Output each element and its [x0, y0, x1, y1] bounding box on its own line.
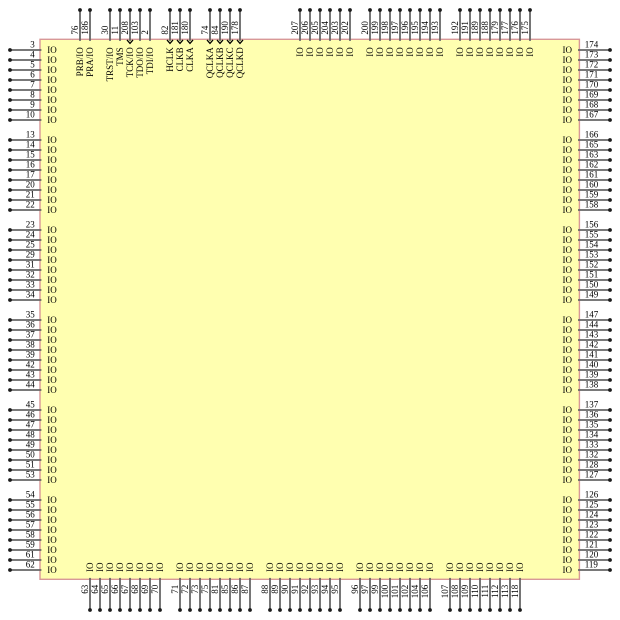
svg-text:128: 128: [585, 460, 599, 470]
svg-text:IO: IO: [47, 135, 57, 145]
svg-text:144: 144: [585, 320, 599, 330]
svg-text:IO: IO: [155, 562, 165, 572]
svg-text:IO: IO: [563, 135, 573, 145]
svg-text:IO: IO: [415, 562, 425, 572]
svg-text:IO: IO: [47, 495, 57, 505]
svg-text:IO: IO: [47, 155, 57, 165]
svg-text:IO: IO: [47, 475, 57, 485]
svg-text:IO: IO: [495, 562, 505, 572]
svg-text:161: 161: [585, 170, 599, 180]
svg-text:48: 48: [26, 430, 36, 440]
svg-text:IO: IO: [47, 255, 57, 265]
svg-text:112: 112: [490, 585, 500, 598]
svg-text:195: 195: [410, 21, 420, 35]
svg-text:55: 55: [26, 500, 36, 510]
svg-text:IO: IO: [505, 47, 515, 57]
svg-text:141: 141: [585, 350, 599, 360]
svg-text:159: 159: [585, 190, 599, 200]
svg-text:IO: IO: [47, 385, 57, 395]
svg-text:QCLKB: QCLKB: [215, 47, 225, 78]
svg-text:IO: IO: [47, 525, 57, 535]
svg-text:IO: IO: [385, 562, 395, 572]
svg-text:IO: IO: [47, 535, 57, 545]
svg-text:119: 119: [585, 560, 599, 570]
svg-text:IO: IO: [47, 225, 57, 235]
svg-text:126: 126: [585, 490, 599, 500]
svg-text:IO: IO: [375, 562, 385, 572]
svg-text:10: 10: [26, 110, 36, 120]
svg-text:166: 166: [585, 130, 599, 140]
svg-text:IO: IO: [563, 495, 573, 505]
svg-text:IO: IO: [563, 405, 573, 415]
svg-text:56: 56: [26, 510, 36, 520]
svg-text:147: 147: [585, 310, 599, 320]
svg-text:42: 42: [26, 360, 35, 370]
svg-text:32: 32: [26, 270, 35, 280]
svg-text:11: 11: [110, 26, 120, 35]
svg-text:104: 104: [410, 584, 420, 598]
svg-text:IO: IO: [375, 47, 385, 57]
svg-text:IO: IO: [325, 47, 335, 57]
svg-text:IO: IO: [563, 185, 573, 195]
svg-text:IO: IO: [563, 275, 573, 285]
svg-text:IO: IO: [47, 315, 57, 325]
svg-text:173: 173: [585, 50, 599, 60]
svg-text:IO: IO: [563, 235, 573, 245]
svg-text:152: 152: [585, 260, 599, 270]
svg-text:IO: IO: [47, 115, 57, 125]
svg-text:109: 109: [460, 584, 470, 598]
svg-text:16: 16: [26, 160, 36, 170]
svg-text:202: 202: [340, 21, 350, 35]
svg-text:203: 203: [330, 21, 340, 35]
svg-text:IO: IO: [325, 562, 335, 572]
svg-text:133: 133: [585, 440, 599, 450]
svg-text:158: 158: [585, 200, 599, 210]
svg-text:IO: IO: [563, 155, 573, 165]
svg-text:IO: IO: [225, 562, 235, 572]
svg-text:3: 3: [30, 40, 35, 50]
svg-text:IO: IO: [47, 515, 57, 525]
svg-text:74: 74: [200, 25, 210, 35]
svg-text:134: 134: [585, 430, 599, 440]
svg-text:205: 205: [310, 21, 320, 35]
svg-text:135: 135: [585, 420, 599, 430]
svg-text:IO: IO: [315, 47, 325, 57]
svg-text:162: 162: [585, 160, 599, 170]
svg-text:94: 94: [320, 584, 330, 594]
svg-text:IO: IO: [563, 255, 573, 265]
svg-text:IO: IO: [47, 335, 57, 345]
svg-text:IO: IO: [563, 75, 573, 85]
svg-text:38: 38: [26, 340, 36, 350]
svg-text:180: 180: [180, 21, 190, 35]
svg-text:34: 34: [26, 290, 36, 300]
svg-text:69: 69: [140, 584, 150, 594]
svg-text:IO: IO: [425, 47, 435, 57]
svg-text:IO: IO: [563, 55, 573, 65]
svg-text:TMS: TMS: [115, 47, 125, 66]
svg-text:39: 39: [26, 350, 36, 360]
svg-text:IO: IO: [47, 415, 57, 425]
svg-text:IO: IO: [563, 115, 573, 125]
svg-text:4: 4: [30, 50, 35, 60]
svg-text:IO: IO: [563, 95, 573, 105]
svg-text:37: 37: [26, 330, 36, 340]
svg-text:IO: IO: [105, 562, 115, 572]
svg-text:142: 142: [585, 340, 599, 350]
svg-text:54: 54: [26, 490, 36, 500]
svg-text:IO: IO: [145, 562, 155, 572]
svg-text:72: 72: [180, 585, 190, 594]
svg-text:IO: IO: [47, 555, 57, 565]
svg-text:194: 194: [420, 21, 430, 35]
svg-text:IO: IO: [563, 145, 573, 155]
svg-text:64: 64: [90, 584, 100, 594]
svg-text:200: 200: [360, 21, 370, 35]
svg-text:IO: IO: [563, 365, 573, 375]
svg-text:50: 50: [26, 450, 36, 460]
svg-text:156: 156: [585, 220, 599, 230]
svg-text:IO: IO: [275, 562, 285, 572]
svg-text:IO: IO: [47, 345, 57, 355]
svg-text:167: 167: [585, 110, 599, 120]
svg-text:15: 15: [26, 150, 36, 160]
svg-text:IO: IO: [563, 455, 573, 465]
svg-text:IO: IO: [365, 562, 375, 572]
svg-text:99: 99: [370, 584, 380, 594]
svg-text:22: 22: [26, 200, 35, 210]
svg-text:86: 86: [230, 584, 240, 594]
svg-text:IO: IO: [47, 405, 57, 415]
svg-text:IO: IO: [485, 562, 495, 572]
svg-text:IO: IO: [395, 562, 405, 572]
svg-text:IO: IO: [47, 285, 57, 295]
svg-text:70: 70: [150, 584, 160, 594]
svg-text:5: 5: [30, 60, 35, 70]
svg-text:122: 122: [585, 530, 599, 540]
svg-text:96: 96: [350, 584, 360, 594]
svg-text:176: 176: [510, 21, 520, 35]
svg-text:149: 149: [585, 290, 599, 300]
svg-text:196: 196: [400, 21, 410, 35]
svg-text:63: 63: [80, 584, 90, 594]
svg-text:168: 168: [585, 100, 599, 110]
svg-text:172: 172: [585, 60, 599, 70]
svg-text:107: 107: [440, 584, 450, 598]
svg-text:IO: IO: [563, 505, 573, 515]
svg-text:IO: IO: [47, 45, 57, 55]
svg-text:IO: IO: [47, 375, 57, 385]
svg-text:IO: IO: [563, 435, 573, 445]
svg-text:90: 90: [280, 584, 290, 594]
svg-text:IO: IO: [475, 47, 485, 57]
svg-text:45: 45: [26, 400, 36, 410]
svg-text:97: 97: [360, 584, 370, 594]
svg-text:IO: IO: [345, 47, 355, 57]
svg-text:93: 93: [310, 584, 320, 594]
svg-text:189: 189: [470, 21, 480, 35]
svg-text:IO: IO: [47, 435, 57, 445]
svg-text:IO: IO: [485, 47, 495, 57]
svg-text:153: 153: [585, 250, 599, 260]
svg-text:IO: IO: [563, 335, 573, 345]
svg-text:IO: IO: [135, 562, 145, 572]
svg-text:192: 192: [450, 21, 460, 35]
svg-text:TCK/IO: TCK/IO: [125, 47, 135, 77]
svg-text:59: 59: [26, 540, 36, 550]
svg-text:IO: IO: [305, 47, 315, 57]
svg-text:PRA/IO: PRA/IO: [85, 47, 95, 77]
svg-text:140: 140: [585, 360, 599, 370]
svg-text:IO: IO: [563, 375, 573, 385]
svg-text:21: 21: [26, 190, 35, 200]
svg-text:118: 118: [510, 584, 520, 598]
svg-text:17: 17: [26, 170, 36, 180]
svg-text:IO: IO: [47, 465, 57, 475]
svg-text:44: 44: [26, 380, 36, 390]
svg-text:IO: IO: [335, 47, 345, 57]
svg-text:IO: IO: [47, 85, 57, 95]
svg-text:IO: IO: [563, 465, 573, 475]
svg-text:IO: IO: [525, 47, 535, 57]
svg-text:31: 31: [26, 260, 35, 270]
svg-text:53: 53: [26, 470, 36, 480]
svg-text:IO: IO: [47, 545, 57, 555]
svg-text:24: 24: [26, 230, 36, 240]
svg-text:IO: IO: [125, 562, 135, 572]
svg-text:125: 125: [585, 500, 599, 510]
svg-text:207: 207: [290, 21, 300, 35]
svg-text:121: 121: [585, 540, 599, 550]
svg-text:81: 81: [210, 585, 220, 594]
svg-text:163: 163: [585, 150, 599, 160]
svg-text:IO: IO: [415, 47, 425, 57]
svg-text:QCLKC: QCLKC: [225, 47, 235, 78]
svg-text:IO: IO: [563, 415, 573, 425]
svg-text:110: 110: [470, 584, 480, 598]
svg-text:IO: IO: [355, 562, 365, 572]
svg-text:IO: IO: [95, 562, 105, 572]
svg-text:73: 73: [190, 584, 200, 594]
svg-text:139: 139: [585, 370, 599, 380]
svg-text:IO: IO: [515, 562, 525, 572]
svg-text:IO: IO: [47, 455, 57, 465]
svg-text:84: 84: [210, 25, 220, 35]
svg-text:43: 43: [26, 370, 36, 380]
svg-text:IO: IO: [47, 105, 57, 115]
svg-text:IO: IO: [563, 425, 573, 435]
svg-text:IO: IO: [215, 562, 225, 572]
svg-text:160: 160: [585, 180, 599, 190]
svg-text:91: 91: [290, 585, 300, 594]
svg-text:IO: IO: [175, 562, 185, 572]
svg-text:IO: IO: [563, 45, 573, 55]
svg-text:IO: IO: [563, 555, 573, 565]
svg-text:IO: IO: [47, 445, 57, 455]
svg-text:14: 14: [26, 140, 36, 150]
svg-text:IO: IO: [205, 562, 215, 572]
svg-text:IO: IO: [563, 105, 573, 115]
svg-text:IO: IO: [563, 225, 573, 235]
svg-text:47: 47: [26, 420, 36, 430]
svg-text:IO: IO: [563, 205, 573, 215]
svg-text:124: 124: [585, 510, 599, 520]
svg-text:IO: IO: [563, 325, 573, 335]
svg-text:68: 68: [130, 584, 140, 594]
svg-text:49: 49: [26, 440, 36, 450]
svg-text:CLKA: CLKA: [185, 47, 195, 72]
svg-text:51: 51: [26, 460, 35, 470]
svg-text:IO: IO: [47, 75, 57, 85]
svg-text:IO: IO: [185, 562, 195, 572]
svg-text:IO: IO: [563, 525, 573, 535]
svg-text:95: 95: [330, 584, 340, 594]
svg-text:IO: IO: [563, 85, 573, 95]
svg-text:IO: IO: [563, 295, 573, 305]
svg-text:30: 30: [100, 25, 110, 35]
svg-text:101: 101: [390, 585, 400, 599]
svg-text:IO: IO: [47, 55, 57, 65]
svg-text:QCLKA: QCLKA: [205, 47, 215, 78]
svg-text:IO: IO: [563, 315, 573, 325]
svg-text:IO: IO: [563, 545, 573, 555]
svg-text:6: 6: [30, 70, 35, 80]
svg-text:186: 186: [80, 21, 90, 35]
svg-text:IO: IO: [455, 562, 465, 572]
svg-text:IO: IO: [395, 47, 405, 57]
svg-text:IO: IO: [47, 195, 57, 205]
svg-text:46: 46: [26, 410, 36, 420]
svg-text:IO: IO: [47, 245, 57, 255]
svg-text:IO: IO: [563, 265, 573, 275]
svg-text:IO: IO: [295, 562, 305, 572]
svg-text:198: 198: [380, 21, 390, 35]
svg-text:IO: IO: [563, 245, 573, 255]
svg-text:120: 120: [585, 550, 599, 560]
svg-text:82: 82: [160, 26, 170, 35]
svg-text:154: 154: [585, 240, 599, 250]
svg-text:IO: IO: [315, 562, 325, 572]
svg-text:199: 199: [370, 21, 380, 35]
svg-text:113: 113: [500, 584, 510, 598]
svg-text:76: 76: [70, 25, 80, 35]
svg-text:89: 89: [270, 584, 280, 594]
svg-text:137: 137: [585, 400, 599, 410]
svg-text:150: 150: [585, 280, 599, 290]
svg-text:IO: IO: [445, 562, 455, 572]
svg-text:IO: IO: [47, 145, 57, 155]
svg-text:35: 35: [26, 310, 36, 320]
svg-text:87: 87: [240, 584, 250, 594]
svg-text:IO: IO: [563, 285, 573, 295]
svg-text:57: 57: [26, 520, 36, 530]
svg-text:102: 102: [400, 585, 410, 599]
svg-text:IO: IO: [475, 562, 485, 572]
svg-text:100: 100: [380, 584, 390, 598]
svg-text:IO: IO: [47, 95, 57, 105]
svg-text:155: 155: [585, 230, 599, 240]
svg-text:IO: IO: [563, 165, 573, 175]
svg-text:9: 9: [30, 100, 35, 110]
svg-text:IO: IO: [245, 562, 255, 572]
svg-text:106: 106: [420, 584, 430, 598]
svg-text:65: 65: [100, 584, 110, 594]
svg-text:61: 61: [26, 550, 35, 560]
svg-text:IO: IO: [405, 562, 415, 572]
svg-text:IO: IO: [365, 47, 375, 57]
svg-text:138: 138: [585, 380, 599, 390]
svg-text:IO: IO: [47, 365, 57, 375]
svg-text:HCLK: HCLK: [165, 47, 175, 72]
svg-text:IO: IO: [195, 562, 205, 572]
svg-text:IO: IO: [295, 47, 305, 57]
svg-text:62: 62: [26, 560, 35, 570]
svg-text:208: 208: [120, 21, 130, 35]
svg-text:204: 204: [320, 21, 330, 35]
svg-text:IO: IO: [515, 47, 525, 57]
svg-text:151: 151: [585, 270, 599, 280]
svg-text:IO: IO: [85, 562, 95, 572]
svg-text:IO: IO: [405, 47, 415, 57]
svg-text:174: 174: [585, 40, 599, 50]
svg-text:TRST/IO: TRST/IO: [105, 47, 115, 82]
svg-text:108: 108: [450, 584, 460, 598]
svg-text:103: 103: [130, 21, 140, 35]
svg-text:TDI/IO: TDI/IO: [145, 47, 155, 74]
svg-text:197: 197: [390, 21, 400, 35]
svg-text:13: 13: [26, 130, 36, 140]
svg-text:IO: IO: [563, 345, 573, 355]
svg-text:IO: IO: [563, 535, 573, 545]
svg-text:132: 132: [585, 450, 599, 460]
svg-text:23: 23: [26, 220, 36, 230]
svg-text:IO: IO: [115, 562, 125, 572]
svg-text:IO: IO: [47, 235, 57, 245]
svg-text:IO: IO: [47, 355, 57, 365]
svg-text:IO: IO: [563, 515, 573, 525]
svg-text:IO: IO: [563, 195, 573, 205]
svg-text:IO: IO: [47, 425, 57, 435]
svg-text:2: 2: [140, 30, 150, 35]
svg-text:TDO/IO: TDO/IO: [135, 47, 145, 78]
svg-text:IO: IO: [305, 562, 315, 572]
svg-text:178: 178: [230, 21, 240, 35]
svg-text:143: 143: [585, 330, 599, 340]
svg-text:188: 188: [480, 21, 490, 35]
svg-text:IO: IO: [335, 562, 345, 572]
svg-text:QCLKD: QCLKD: [235, 47, 245, 78]
svg-text:IO: IO: [47, 265, 57, 275]
svg-text:8: 8: [30, 90, 35, 100]
svg-text:170: 170: [585, 80, 599, 90]
svg-text:206: 206: [300, 21, 310, 35]
svg-text:29: 29: [26, 250, 36, 260]
svg-text:IO: IO: [435, 47, 445, 57]
svg-text:IO: IO: [563, 475, 573, 485]
svg-text:IO: IO: [563, 175, 573, 185]
svg-text:179: 179: [490, 21, 500, 35]
svg-text:IO: IO: [47, 565, 57, 575]
svg-text:33: 33: [26, 280, 36, 290]
svg-text:175: 175: [520, 21, 530, 35]
svg-text:IO: IO: [465, 562, 475, 572]
svg-text:123: 123: [585, 520, 599, 530]
svg-text:PRB/IO: PRB/IO: [75, 47, 85, 77]
svg-text:58: 58: [26, 530, 36, 540]
svg-text:IO: IO: [505, 562, 515, 572]
svg-text:IO: IO: [265, 562, 275, 572]
